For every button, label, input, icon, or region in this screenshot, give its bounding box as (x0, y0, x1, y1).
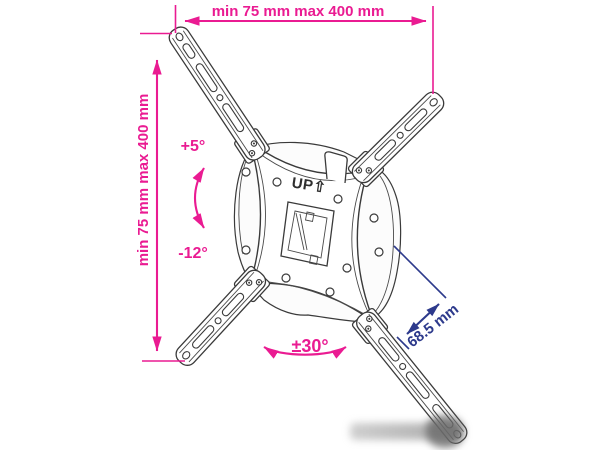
width-dimension-label: min 75 mm max 400 mm (173, 4, 423, 20)
height-dimension-label: min 75 mm max 400 mm (136, 55, 152, 305)
tv-mount-technical-diagram: min 75 mm max 400 mm min 75 mm max 400 m… (0, 0, 600, 450)
tilt-angle-arrow (195, 168, 204, 228)
arm-upper-right (347, 86, 450, 188)
center-opening (281, 202, 334, 266)
depth-leader-line (394, 246, 446, 298)
arm-lower-left (170, 265, 271, 372)
tilt-down-angle-label: -12° (165, 246, 221, 263)
bracket-line-drawing (0, 0, 600, 450)
top-hook-tab (325, 152, 347, 183)
swivel-angle-label: ±30° (278, 337, 342, 356)
watermark-blob (426, 415, 464, 448)
tilt-up-angle-label: +5° (170, 139, 216, 156)
